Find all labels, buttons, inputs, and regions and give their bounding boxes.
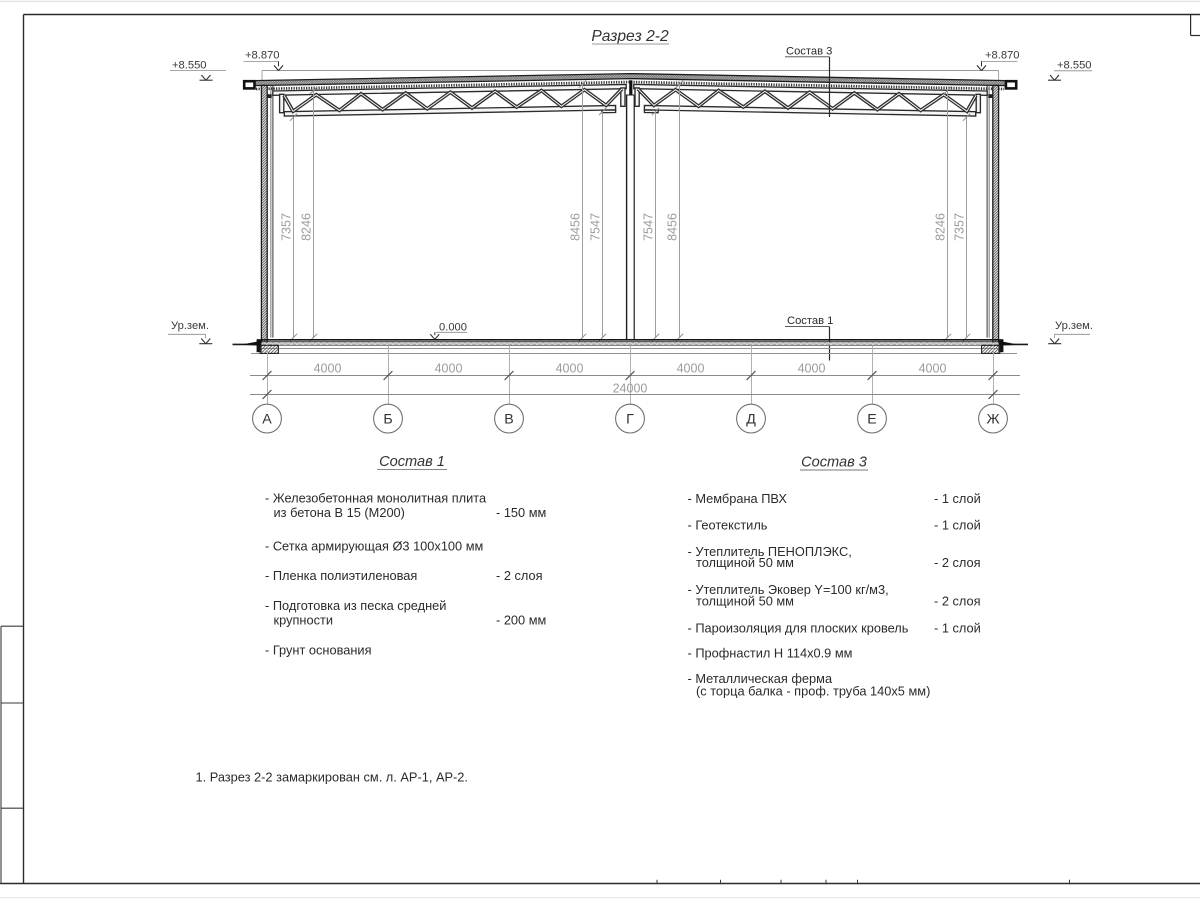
svg-text:- Геотекстиль: - Геотекстиль xyxy=(688,518,768,533)
svg-text:- 1 слой: - 1 слой xyxy=(934,620,981,635)
svg-text:8246: 8246 xyxy=(299,213,313,241)
svg-text:толщиной 50 мм: толщиной 50 мм xyxy=(696,555,794,570)
svg-text:+8.870: +8.870 xyxy=(245,50,280,62)
svg-text:Состав 1: Состав 1 xyxy=(787,315,833,327)
svg-text:- 2 слоя: - 2 слоя xyxy=(496,568,543,583)
svg-text:Разрез 2-2: Разрез 2-2 xyxy=(591,28,669,45)
svg-text:- Пароизоляция для плоских кро: - Пароизоляция для плоских кровель xyxy=(688,620,909,635)
svg-text:Б: Б xyxy=(383,412,392,428)
svg-text:4000: 4000 xyxy=(919,362,947,376)
svg-text:Ур.зем.: Ур.зем. xyxy=(1055,320,1093,332)
svg-text:А: А xyxy=(262,412,272,428)
svg-text:4000: 4000 xyxy=(314,362,342,376)
svg-text:4000: 4000 xyxy=(435,362,463,376)
svg-text:Е: Е xyxy=(867,412,876,428)
svg-text:+8.550: +8.550 xyxy=(172,60,207,72)
svg-text:Ур.зем.: Ур.зем. xyxy=(171,320,209,332)
svg-text:Г: Г xyxy=(626,412,634,428)
svg-text:- Подготовка из песка средней: - Подготовка из песка средней xyxy=(265,598,446,613)
svg-text:Состав 3: Состав 3 xyxy=(801,455,867,471)
svg-text:4000: 4000 xyxy=(798,362,826,376)
svg-text:8246: 8246 xyxy=(933,213,947,241)
svg-text:Д: Д xyxy=(746,412,756,428)
svg-text:1. Разрез 2-2 замаркирован см.: 1. Разрез 2-2 замаркирован см. л. АР-1, … xyxy=(196,770,468,785)
svg-text:Состав 1: Состав 1 xyxy=(379,454,445,470)
svg-text:- Профнастил Н 114х0.9 мм: - Профнастил Н 114х0.9 мм xyxy=(688,645,853,660)
svg-text:крупности: крупности xyxy=(274,613,334,628)
svg-text:+8.550: +8.550 xyxy=(1057,60,1092,72)
svg-text:из бетона В 15 (М200): из бетона В 15 (М200) xyxy=(274,505,405,520)
svg-text:- 1 слой: - 1 слой xyxy=(934,518,981,533)
svg-text:- Железобетонная монолитная п: - Железобетонная монолитная плита xyxy=(265,491,487,506)
svg-text:7357: 7357 xyxy=(279,213,293,241)
svg-text:- 2 слоя: - 2 слоя xyxy=(934,555,981,570)
svg-text:- 200 мм: - 200 мм xyxy=(496,613,546,628)
svg-text:толщиной 50 мм: толщиной 50 мм xyxy=(696,594,794,609)
svg-text:+8.870: +8.870 xyxy=(985,50,1020,62)
svg-text:В: В xyxy=(504,412,513,428)
svg-text:- 2 слоя: - 2 слоя xyxy=(934,594,981,609)
svg-text:7547: 7547 xyxy=(641,213,655,241)
svg-text:- Сетка армирующая Ø3 100х100: - Сетка армирующая Ø3 100х100 мм xyxy=(265,539,483,554)
svg-text:- Грунт основания: - Грунт основания xyxy=(265,643,372,658)
svg-text:(с торца балка - проф. труба 1: (с торца балка - проф. труба 140х5 мм) xyxy=(696,683,930,698)
svg-text:- 150 мм: - 150 мм xyxy=(496,505,546,520)
svg-text:7547: 7547 xyxy=(588,213,602,241)
svg-text:4000: 4000 xyxy=(677,362,705,376)
svg-text:- Мембрана ПВХ: - Мембрана ПВХ xyxy=(688,491,788,506)
svg-text:7357: 7357 xyxy=(952,213,966,241)
svg-text:- 1 слой: - 1 слой xyxy=(934,491,981,506)
svg-text:0.000: 0.000 xyxy=(439,321,467,333)
svg-text:4000: 4000 xyxy=(556,362,584,376)
svg-text:Ж: Ж xyxy=(986,412,999,428)
svg-text:Состав 3: Состав 3 xyxy=(786,46,832,58)
svg-text:8456: 8456 xyxy=(665,213,679,241)
svg-text:- Пленка полиэтиленовая: - Пленка полиэтиленовая xyxy=(265,568,417,583)
svg-text:24000: 24000 xyxy=(613,382,648,396)
svg-text:8456: 8456 xyxy=(568,213,582,241)
